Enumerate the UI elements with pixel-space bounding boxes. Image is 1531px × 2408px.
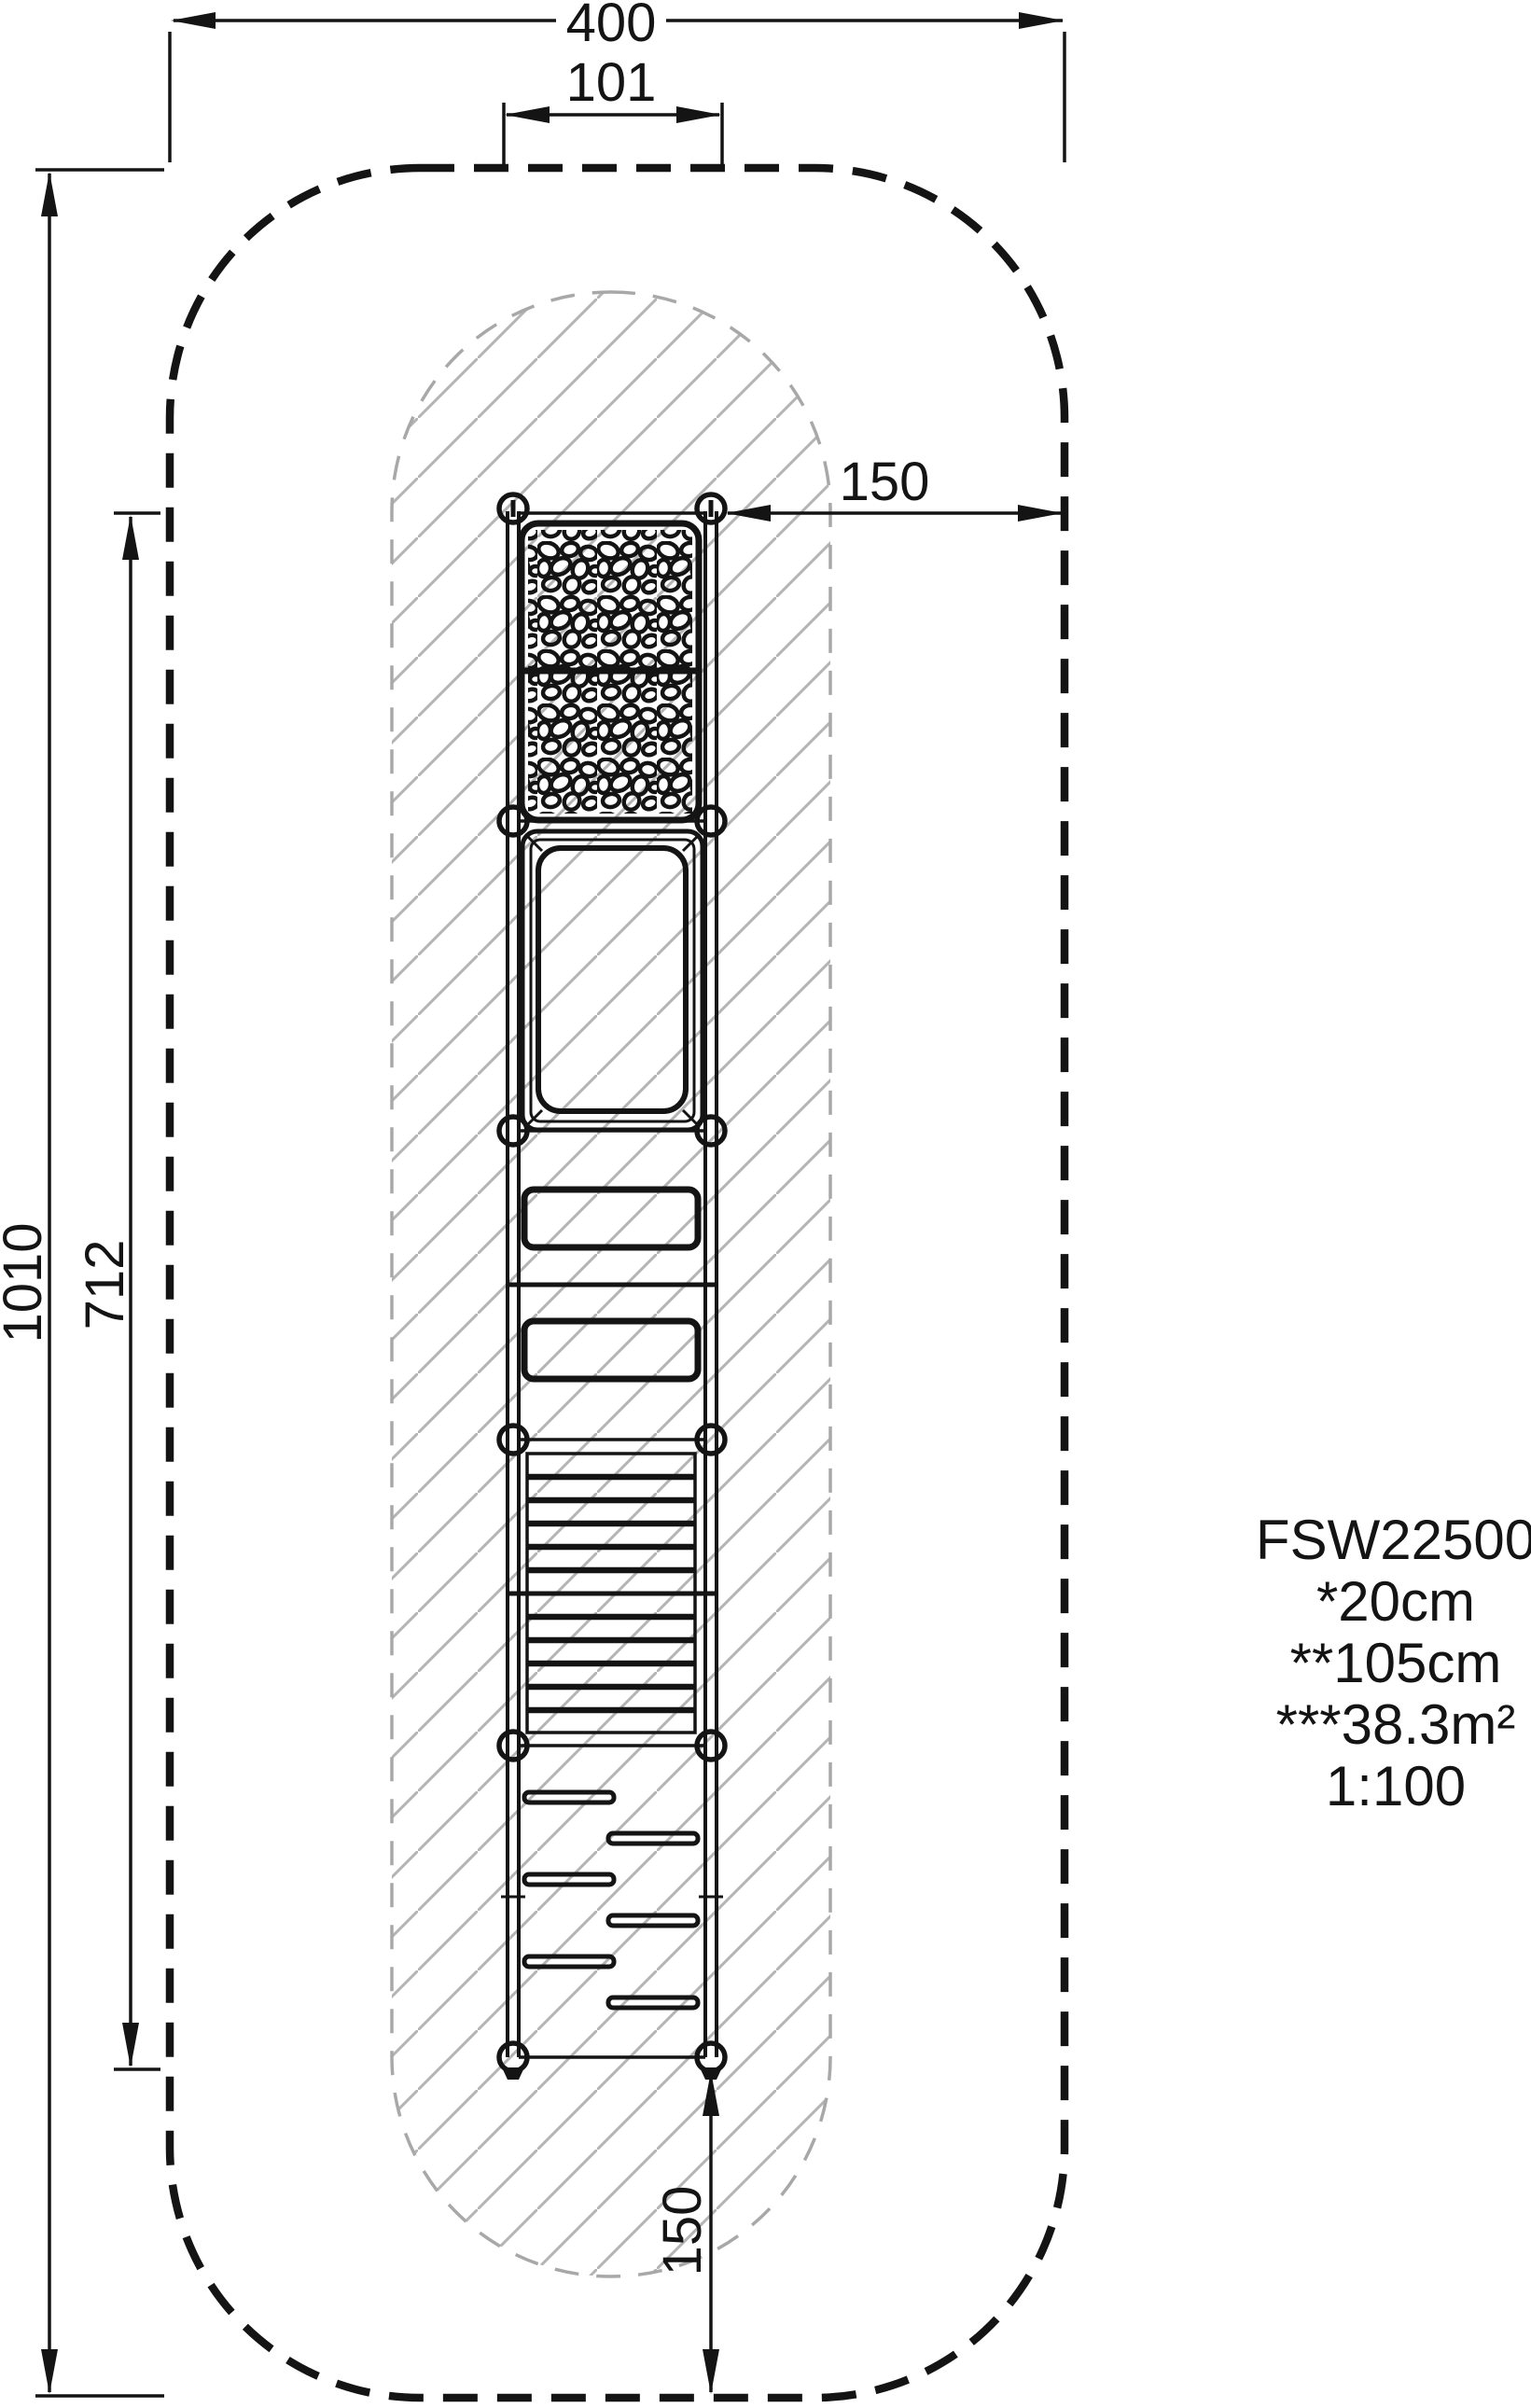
note-fall-height: *20cm bbox=[1316, 1570, 1475, 1633]
model-code: FSW22500 bbox=[1256, 1509, 1531, 1571]
note-platform-height: **105cm bbox=[1290, 1632, 1502, 1694]
plan-drawing: 400 101 150 1010 bbox=[0, 0, 1531, 2408]
dim-label-1010: 1010 bbox=[0, 1222, 53, 1343]
dim-top-inner: 101 bbox=[504, 52, 722, 166]
dim-label-150-bottom: 150 bbox=[652, 2186, 713, 2276]
note-safety-area: ***38.3m² bbox=[1276, 1693, 1516, 1756]
drawing-scale: 1:100 bbox=[1326, 1755, 1466, 1817]
drawing-svg: 400 101 150 1010 bbox=[0, 0, 1531, 2408]
info-block: FSW22500 *20cm **105cm ***38.3m² 1:100 bbox=[1256, 1509, 1531, 1817]
dim-label-101: 101 bbox=[566, 52, 657, 113]
dim-label-400: 400 bbox=[566, 0, 657, 53]
dim-left-inner: 712 bbox=[75, 513, 160, 2069]
stone-climb-panel bbox=[522, 523, 699, 820]
dim-label-712: 712 bbox=[75, 1240, 135, 1330]
dim-label-150-right: 150 bbox=[840, 452, 930, 512]
